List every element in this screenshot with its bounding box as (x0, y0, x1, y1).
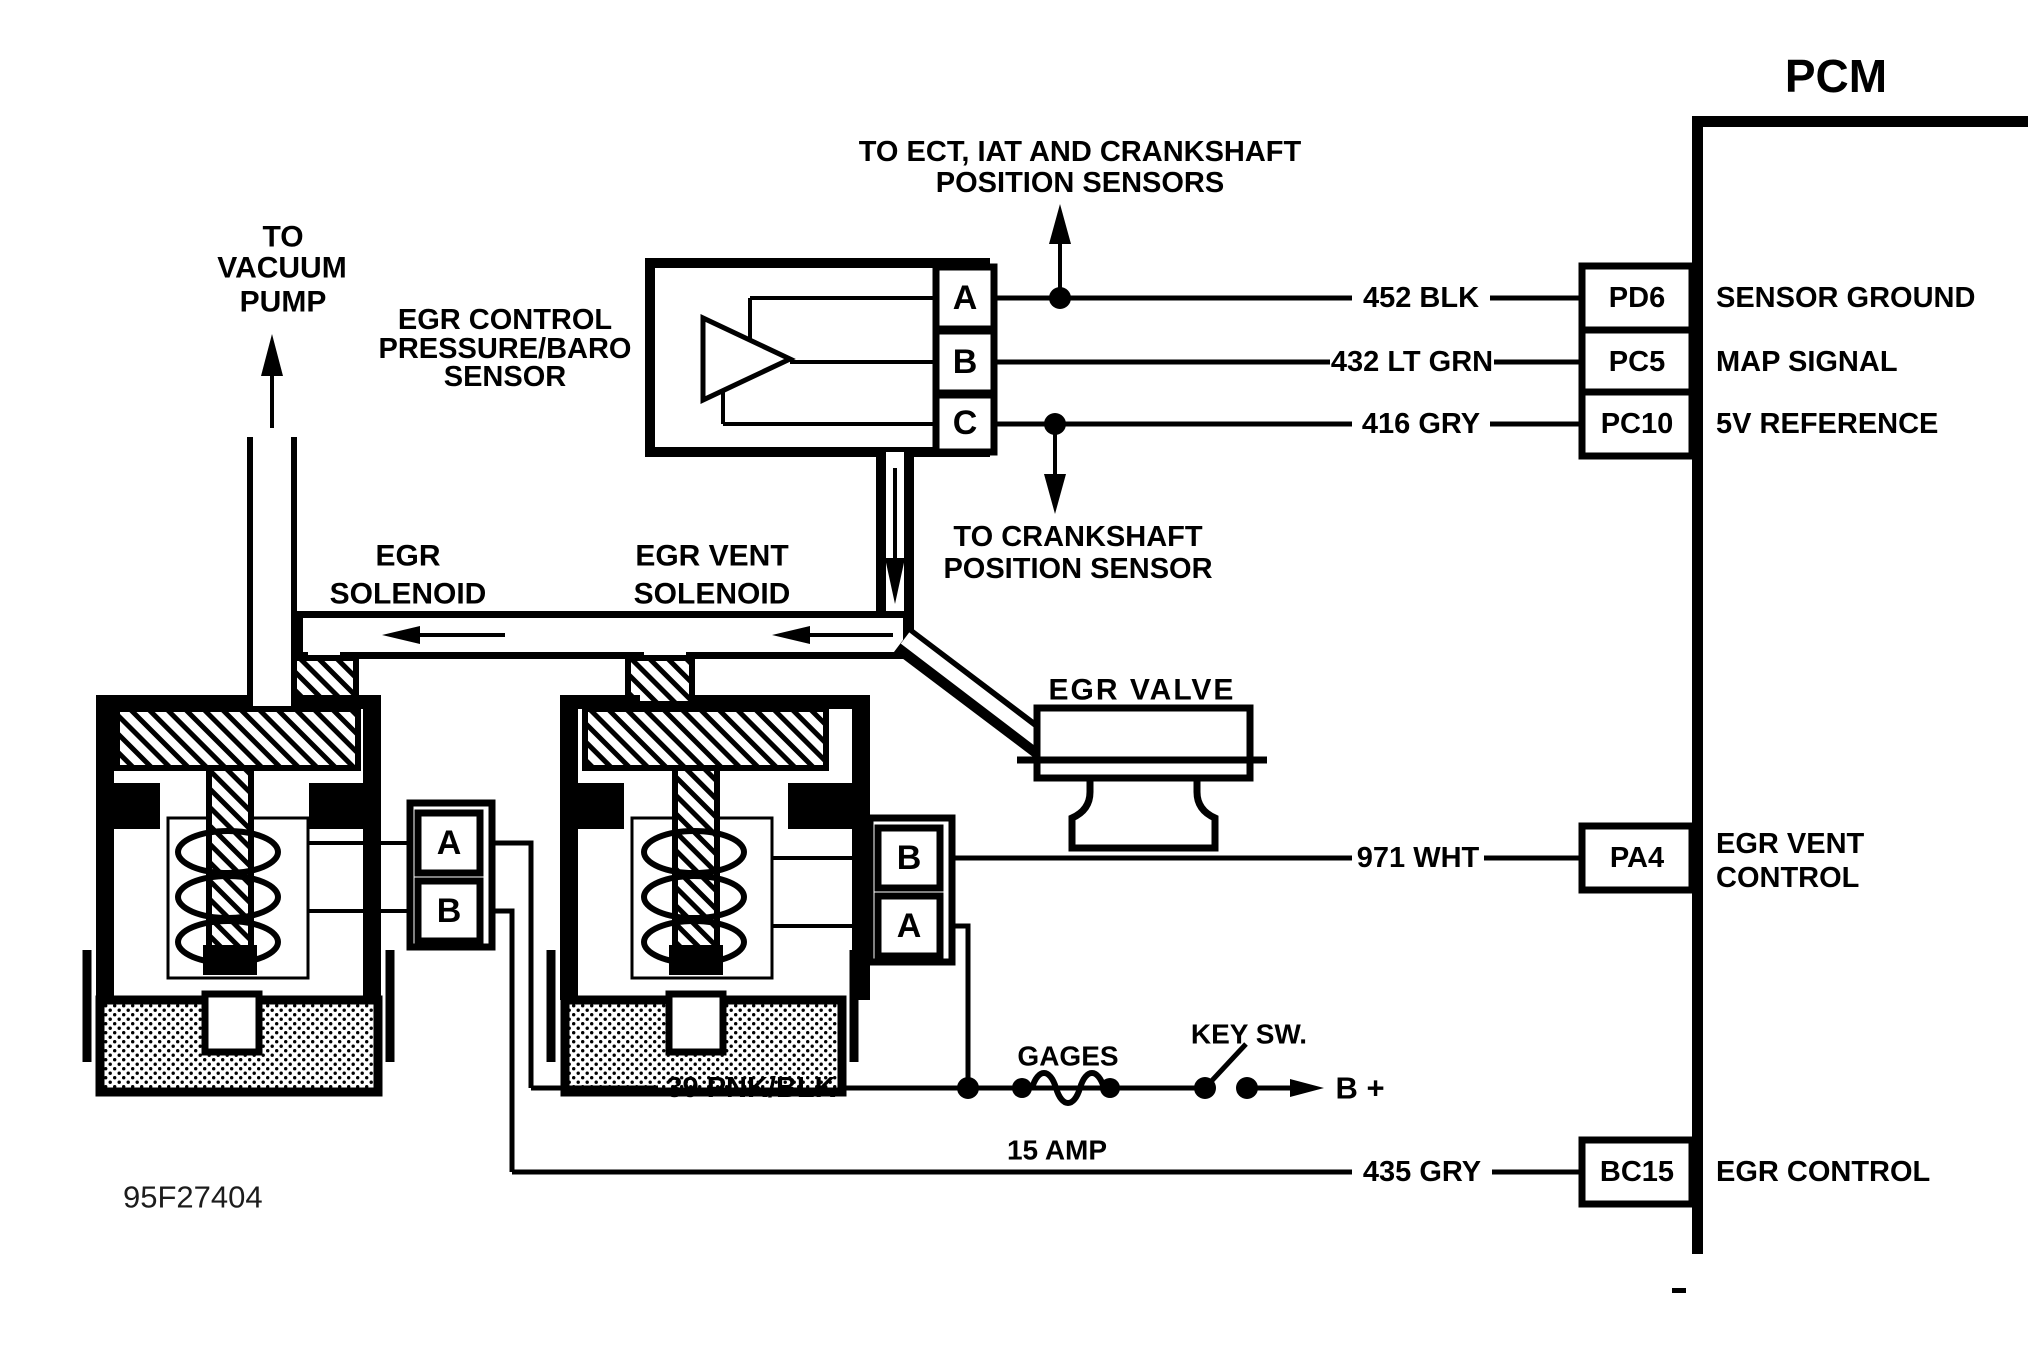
pcm-pin-pa4: PA4 (1610, 842, 1664, 874)
junction-dot (957, 1077, 979, 1099)
plunger-bar (117, 709, 358, 768)
vent-solenoid-label-line2: SOLENOID (634, 578, 791, 611)
body-top (560, 695, 640, 709)
pcm-function-5v-reference: 5V REFERENCE (1716, 408, 1938, 440)
wire-432-lt-grn: 432 LT GRN PC5 MAP SIGNAL (994, 330, 1898, 394)
egr-valve: EGR VALVE (1017, 674, 1267, 849)
wire-label-452-blk: 452 BLK (1363, 282, 1479, 314)
fuse-name-label: GAGES (1017, 1041, 1118, 1072)
sensor-pin-c: C (953, 404, 978, 442)
vent-solenoid-label-line1: EGR VENT (635, 540, 788, 573)
body-wall (560, 695, 578, 1000)
vacuum-pipe (250, 437, 294, 707)
body-top (297, 695, 381, 709)
ect-annotation-line1: TO ECT, IAT AND CRANKSHAFT (859, 136, 1302, 168)
wire-452-blk: 452 BLK PD6 SENSOR GROUND (994, 266, 1975, 330)
wiring-diagram: PCM 452 BLK PD6 SENSOR GROUND 432 LT GRN… (0, 0, 2028, 1368)
plunger-stem (209, 768, 251, 963)
crank-annotation-line2: POSITION SENSOR (943, 553, 1212, 585)
wire-971-wht: 971 WHT PA4 EGR VENT CONTROL (952, 826, 1865, 894)
map-sensor-label-line1: EGR CONTROL (398, 304, 612, 336)
fuse-terminal-dot (1012, 1078, 1032, 1098)
pcm-function-egr-vent-line2: CONTROL (1716, 862, 1859, 894)
pcm-pin-bc15: BC15 (1600, 1156, 1674, 1188)
map-sensor-label-line3: SENSOR (444, 361, 567, 393)
wire-label-432-lt-grn: 432 LT GRN (1331, 346, 1493, 378)
egr-solenoid-label-line2: SOLENOID (330, 578, 487, 611)
wire-label-435-gry: 435 GRY (1363, 1156, 1481, 1188)
map-sensor: EGR CONTROL PRESSURE/BARO SENSOR A B C (379, 263, 995, 452)
vent-solenoid-pin-a: A (897, 907, 922, 945)
wire-435-gry: 435 GRY BC15 EGR CONTROL (512, 1140, 1930, 1204)
junction-dot (1049, 287, 1071, 309)
right-arrow-icon (1290, 1079, 1324, 1097)
sensor-pin-b: B (953, 343, 978, 381)
pcm-function-map-signal: MAP SIGNAL (1716, 346, 1898, 378)
egr-solenoid-pin-a: A (437, 824, 462, 862)
fuse-rating-label: 15 AMP (1007, 1135, 1107, 1166)
vacuum-label-line1: TO (262, 221, 303, 254)
body-top (690, 695, 870, 709)
battery-label: B + (1335, 1071, 1384, 1106)
egr-solenoid-label-line1: EGR (375, 540, 440, 573)
key-switch-label: KEY SW. (1191, 1019, 1307, 1050)
plunger-stem (675, 768, 717, 963)
egr-valve-body (1037, 708, 1250, 778)
down-arrow-icon (1044, 474, 1066, 514)
wire-label-39-pnk-blk: 39 PNK/BLK (666, 1072, 835, 1104)
figure-id: 95F27404 (123, 1180, 263, 1215)
vacuum-pump-annotation: TO VACUUM PUMP (217, 221, 346, 429)
pole-piece (788, 783, 852, 829)
sensor-pin-a: A (953, 279, 978, 317)
switch-terminal-dot (1236, 1077, 1258, 1099)
egr-valve-base (1072, 778, 1215, 848)
pcm-function-sensor-ground: SENSOR GROUND (1716, 282, 1975, 314)
base-notch (205, 994, 259, 1052)
vacuum-label-line3: PUMP (240, 286, 327, 319)
pcm-title: PCM (1785, 50, 1887, 102)
pcm-top-edge (1692, 116, 2028, 127)
wire-label-971-wht: 971 WHT (1357, 842, 1480, 874)
pcm-function-egr-control: EGR CONTROL (1716, 1156, 1930, 1188)
stray-mark (1672, 1288, 1686, 1293)
wire-label-416-gry: 416 GRY (1362, 408, 1480, 440)
vacuum-label-line2: VACUUM (217, 252, 346, 285)
egr-solenoid-pin-b: B (437, 892, 462, 930)
crank-annotation-line1: TO CRANKSHAFT (953, 521, 1202, 553)
diagram-canvas: PCM 452 BLK PD6 SENSOR GROUND 432 LT GRN… (0, 0, 2028, 1368)
pcm-pin-pc5: PC5 (1609, 346, 1665, 378)
up-arrow-icon (1049, 204, 1071, 244)
body-wall (96, 695, 114, 1000)
pcm-pin-pd6: PD6 (1609, 282, 1665, 314)
pcm-module: PCM (1672, 50, 2028, 1293)
ect-annotation-line2: POSITION SENSORS (936, 167, 1224, 199)
body-top (96, 695, 247, 709)
base-notch (669, 994, 723, 1052)
pcm-pin-pc10: PC10 (1601, 408, 1674, 440)
wire-416-gry: 416 GRY PC10 5V REFERENCE (994, 392, 1938, 456)
vent-solenoid-pin-b: B (897, 839, 922, 877)
plunger-bar (585, 709, 826, 768)
fuse-terminal-dot (1100, 1078, 1120, 1098)
up-arrow-icon (261, 334, 283, 376)
egr-valve-label: EGR VALVE (1049, 674, 1236, 707)
pcm-function-egr-vent-line1: EGR VENT (1716, 828, 1865, 860)
body-wall (363, 695, 381, 1000)
